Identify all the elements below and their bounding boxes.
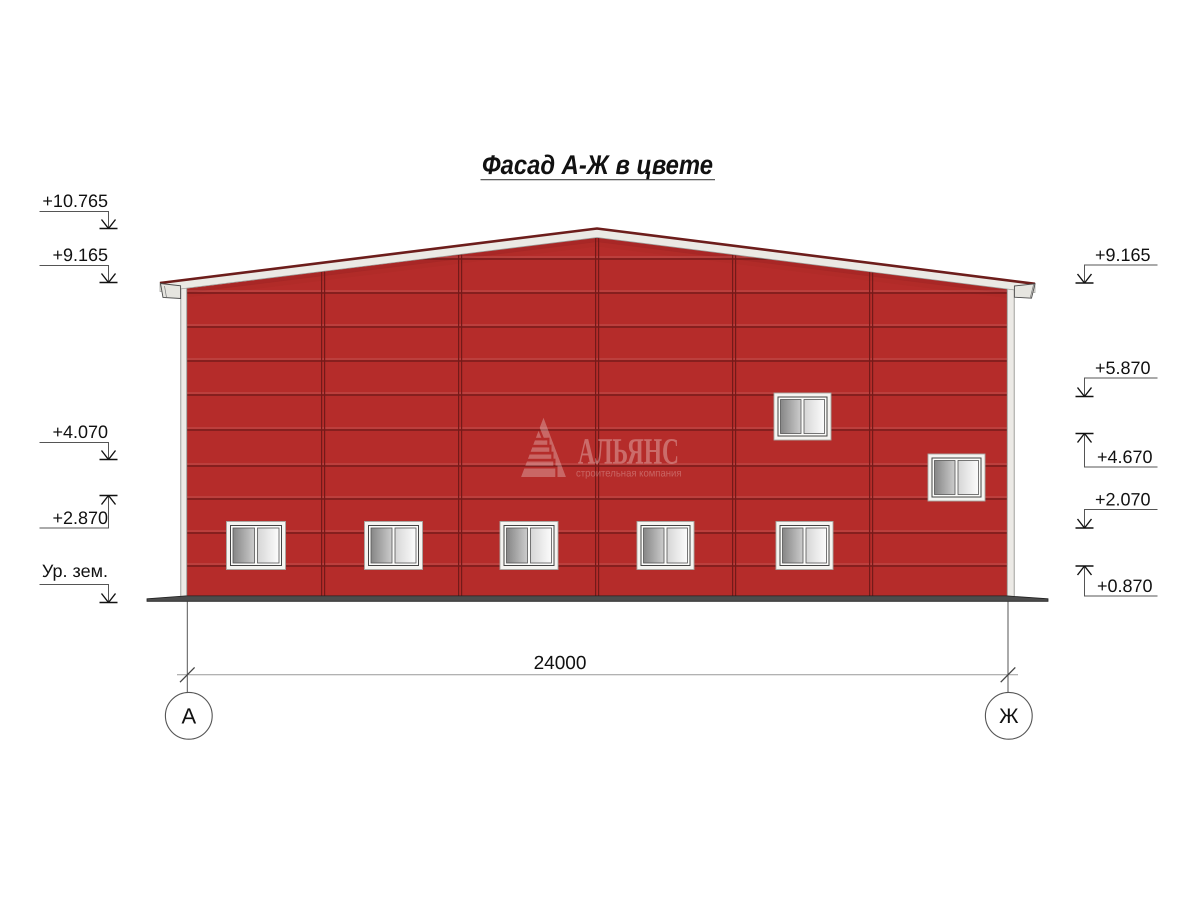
svg-text:+9.165: +9.165 bbox=[52, 245, 108, 265]
svg-text:+5.870: +5.870 bbox=[1095, 358, 1151, 378]
svg-text:Ж: Ж bbox=[999, 705, 1019, 728]
svg-text:АЛЬЯНС: АЛЬЯНС bbox=[578, 432, 679, 473]
svg-text:+4.670: +4.670 bbox=[1097, 447, 1153, 467]
svg-text:+0.870: +0.870 bbox=[1097, 576, 1153, 596]
svg-text:Ур. зем.: Ур. зем. bbox=[42, 561, 108, 581]
svg-text:+2.870: +2.870 bbox=[52, 508, 108, 528]
svg-text:Фасад А-Ж в цвете: Фасад А-Ж в цвете bbox=[482, 150, 713, 180]
svg-text:+2.070: +2.070 bbox=[1095, 490, 1151, 510]
svg-text:строительная компания: строительная компания bbox=[576, 468, 682, 480]
svg-text:+9.165: +9.165 bbox=[1095, 245, 1151, 265]
svg-text:А: А bbox=[181, 704, 196, 729]
svg-text:24000: 24000 bbox=[534, 653, 587, 674]
svg-text:+10.765: +10.765 bbox=[42, 191, 108, 211]
svg-text:+4.070: +4.070 bbox=[52, 422, 108, 442]
